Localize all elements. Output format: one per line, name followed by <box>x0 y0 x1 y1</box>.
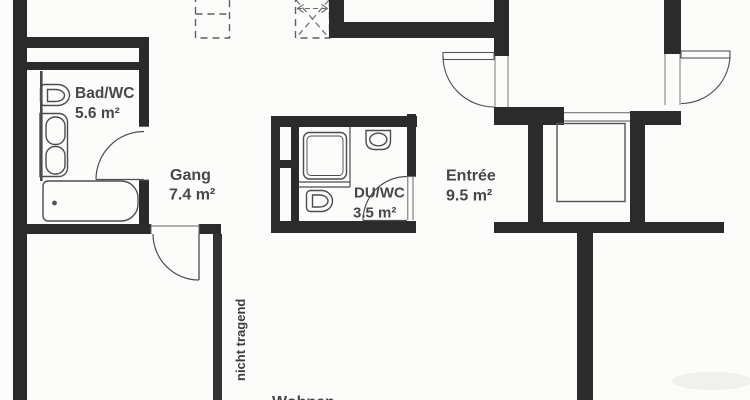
svg-text:5.6 m²: 5.6 m² <box>75 105 120 122</box>
svg-text:7.4 m²: 7.4 m² <box>169 187 215 204</box>
svg-text:Gang: Gang <box>170 167 211 184</box>
svg-text:nicht tragend: nicht tragend <box>233 299 248 381</box>
svg-text:Wohnen: Wohnen <box>272 394 335 400</box>
svg-text:Entrée: Entrée <box>446 168 496 185</box>
svg-text:Bad/WC: Bad/WC <box>75 85 134 102</box>
svg-text:3.5 m²: 3.5 m² <box>353 205 396 222</box>
svg-text:DU/WC: DU/WC <box>354 185 405 202</box>
svg-text:9.5 m²: 9.5 m² <box>446 188 492 205</box>
